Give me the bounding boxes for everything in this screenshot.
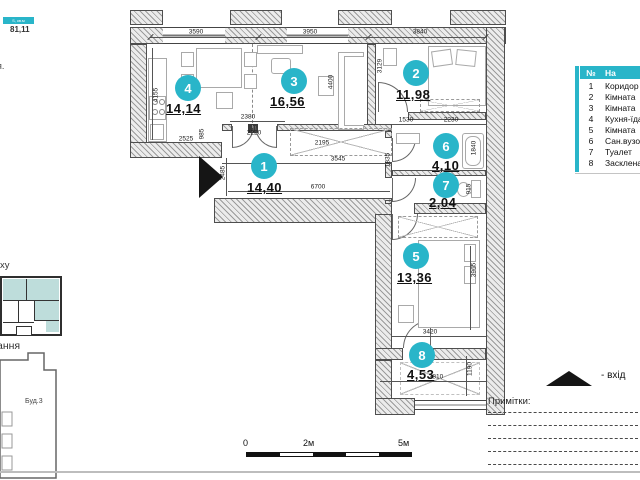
note-line <box>488 438 638 439</box>
table-divider <box>575 173 640 174</box>
dimension-label: 3545 <box>331 156 345 163</box>
row-name: Коридор <box>602 81 639 91</box>
dimension-label: 3950 <box>303 29 317 36</box>
row-number: 6 <box>580 136 602 146</box>
row-name: Кімната <box>602 103 635 113</box>
row-name: Кухня-їдал <box>602 114 640 124</box>
table-row: 4 Кухня-їдал <box>580 113 640 124</box>
floor-plan: 3590 3950 3840 4155 4400 3129 2525 985 2… <box>0 0 640 480</box>
partition-room5-loggia <box>375 348 403 360</box>
exterior-wall-right <box>486 27 505 415</box>
table-row: 2 Кімната <box>580 91 640 102</box>
entrance-legend-icon <box>544 368 596 387</box>
dimension-label: 4155 <box>153 88 160 102</box>
row-number: 4 <box>580 114 602 124</box>
dimension-line <box>392 124 486 125</box>
partition-bath-left <box>385 200 392 204</box>
dimension-label: 2380 <box>241 114 255 121</box>
room-area-label: 4,10 <box>432 158 459 173</box>
dimension-line <box>470 246 471 330</box>
dimension-line <box>392 336 486 337</box>
scale-label-5m: 5м <box>398 438 409 448</box>
dimension-label: 1530 <box>399 117 413 124</box>
row-number: 7 <box>580 147 602 157</box>
dimension-label: 3129 <box>377 59 384 73</box>
room-area-label: 16,56 <box>270 94 305 109</box>
row-number: 1 <box>580 81 602 91</box>
dimension-line <box>222 163 392 164</box>
dimension-label: 3590 <box>189 29 203 36</box>
pillow <box>431 49 453 68</box>
table-row: 1 Коридор <box>580 80 640 91</box>
chair <box>216 92 233 109</box>
desk <box>257 45 303 54</box>
nightstand <box>398 305 414 323</box>
door-arc <box>392 178 416 202</box>
dimension-line <box>150 37 486 38</box>
scale-label-0: 0 <box>243 438 248 448</box>
room-area-label: 11,98 <box>396 87 430 102</box>
sink <box>396 133 420 144</box>
chair <box>181 52 194 67</box>
dimension-label: 1840 <box>471 141 478 155</box>
wing-left-wall <box>375 214 392 360</box>
exterior-wall-left <box>130 44 147 158</box>
table-col-number: № <box>580 68 602 78</box>
parapet-wall <box>130 10 163 25</box>
dining-table <box>196 48 242 88</box>
dimension-label: 1835 <box>385 153 392 167</box>
dimension-line <box>230 121 285 122</box>
wardrobe <box>398 216 478 238</box>
dimension-label: 2220 <box>247 130 261 137</box>
row-name: Кімната <box>602 125 635 135</box>
row-name: Засклена <box>602 158 640 168</box>
dimension-label: 2485 <box>220 166 227 180</box>
room-area-label: 2,04 <box>429 195 456 210</box>
dimension-label: 3965 <box>471 263 478 277</box>
dimension-label: 2230 <box>444 117 458 124</box>
table-row: 7 Туалет <box>580 146 640 157</box>
notes-label: Примітки: <box>488 396 531 407</box>
room-number-badge: 1 <box>251 153 277 179</box>
nightstand <box>383 48 397 66</box>
room-area-label: 14,14 <box>166 101 201 116</box>
dimension-label: 3420 <box>423 329 437 336</box>
chair <box>244 74 257 89</box>
loggia-corner-wall <box>375 398 415 415</box>
parapet-wall <box>450 10 506 25</box>
dimension-label: 4400 <box>328 75 335 89</box>
row-name: Кімната <box>602 92 635 102</box>
dimension-label: 2195 <box>315 140 329 147</box>
room-number-badge: 8 <box>409 342 435 368</box>
note-line <box>488 451 638 452</box>
table-row: 8 Засклена <box>580 157 640 168</box>
room-number-badge: 6 <box>433 133 459 159</box>
row-number: 2 <box>580 92 602 102</box>
table-accent-strip <box>575 66 579 172</box>
loggia-glazing <box>415 400 486 410</box>
partition-corridor-post <box>222 124 232 131</box>
row-name: Сан.вузол <box>602 136 640 146</box>
chair <box>244 52 257 67</box>
scale-bar <box>246 452 412 457</box>
table-row: 6 Сан.вузол <box>580 135 640 146</box>
room-area-label: 4,53 <box>407 367 434 382</box>
scale-segment <box>313 453 346 456</box>
parapet-wall <box>230 10 282 25</box>
table-header: № На <box>580 66 640 79</box>
dimension-label: 1190 <box>467 362 474 376</box>
row-number: 8 <box>580 158 602 168</box>
room-area-label: 13,36 <box>397 270 432 285</box>
note-line <box>488 412 638 413</box>
scale-label-2m: 2м <box>303 438 314 448</box>
partition-room5-loggia <box>433 348 486 360</box>
dimension-label: 3840 <box>413 29 427 36</box>
note-line <box>488 464 638 465</box>
table-row: 5 Кімната <box>580 124 640 135</box>
toilet-tank <box>471 180 481 198</box>
window <box>287 27 348 44</box>
note-line <box>488 425 638 426</box>
room-number-badge: 5 <box>403 243 429 269</box>
entrance-legend-label: - вхід <box>601 370 625 381</box>
row-number: 3 <box>580 103 602 113</box>
row-name: Туалет <box>602 147 632 157</box>
floor-plan-page: S, кв.м 81,11 я. ху ання Буд.3 <box>0 0 640 480</box>
scale-segment <box>247 453 280 456</box>
table-row: 3 Кімната <box>580 102 640 113</box>
dimension-label: 6700 <box>311 184 325 191</box>
row-number: 5 <box>580 125 602 135</box>
room-number-badge: 2 <box>403 60 429 86</box>
parapet-wall <box>338 10 392 25</box>
dimension-label: 985 <box>199 129 206 140</box>
dimension-label: 915 <box>466 184 473 195</box>
table-col-name: На <box>602 68 616 78</box>
corridor-bottom-wall <box>214 198 392 223</box>
room-number-badge: 4 <box>175 75 201 101</box>
wardrobe <box>290 128 392 156</box>
scale-segment <box>379 453 411 456</box>
sofa-seat <box>344 56 364 126</box>
page-footer-line <box>0 471 640 473</box>
room-number-badge: 3 <box>281 68 307 94</box>
dimension-label: 2525 <box>179 136 193 143</box>
partition-room3-room2 <box>367 44 376 131</box>
pillow <box>455 49 477 67</box>
room-area-label: 14,40 <box>247 180 282 195</box>
